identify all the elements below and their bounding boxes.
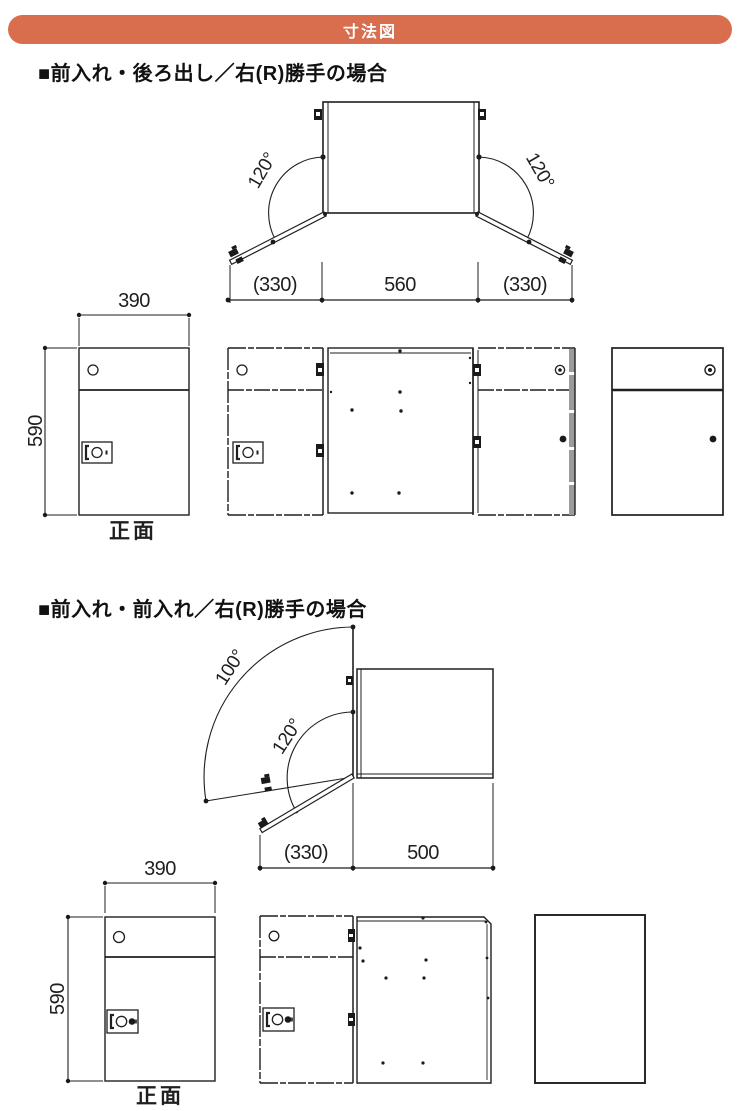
width-dim-label: 390 <box>99 290 169 312</box>
height-dim-label: 590 <box>25 401 47 461</box>
latch-hardware <box>260 774 272 792</box>
rear-view <box>612 348 723 515</box>
dimension-drawing-page: 寸法図 ■前入れ・後ろ出し／右(R)勝手の場合 <box>0 0 740 1111</box>
dim-560: 560 <box>365 274 435 296</box>
lock <box>82 442 112 463</box>
height-dim-label: 590 <box>47 969 69 1029</box>
front-view <box>43 313 191 517</box>
rear-view <box>535 915 645 1083</box>
section2-front-views-drawing <box>40 868 700 1111</box>
dim-330: (330) <box>271 842 341 864</box>
section1-heading: ■前入れ・後ろ出し／右(R)勝手の場合 <box>38 57 387 86</box>
unfolded-view <box>260 916 491 1083</box>
section2-top-view-drawing <box>150 615 570 877</box>
left-open-door <box>230 212 326 264</box>
width-dim-label: 390 <box>125 858 195 880</box>
front-view <box>66 881 217 1083</box>
dim-500: 500 <box>388 842 458 864</box>
page-title: 寸法図 <box>343 18 397 42</box>
right-open-door <box>476 212 572 264</box>
dim-330-right: (330) <box>490 274 560 296</box>
front-caption: 正面 <box>125 1086 195 1108</box>
section1-front-views-drawing <box>30 295 730 555</box>
dim-330-left: (330) <box>240 274 310 296</box>
door-open-120 <box>260 774 354 833</box>
title-banner: 寸法図 <box>8 15 732 44</box>
lock <box>107 1010 138 1033</box>
front-caption: 正面 <box>98 521 168 543</box>
unfolded-view <box>228 348 575 515</box>
